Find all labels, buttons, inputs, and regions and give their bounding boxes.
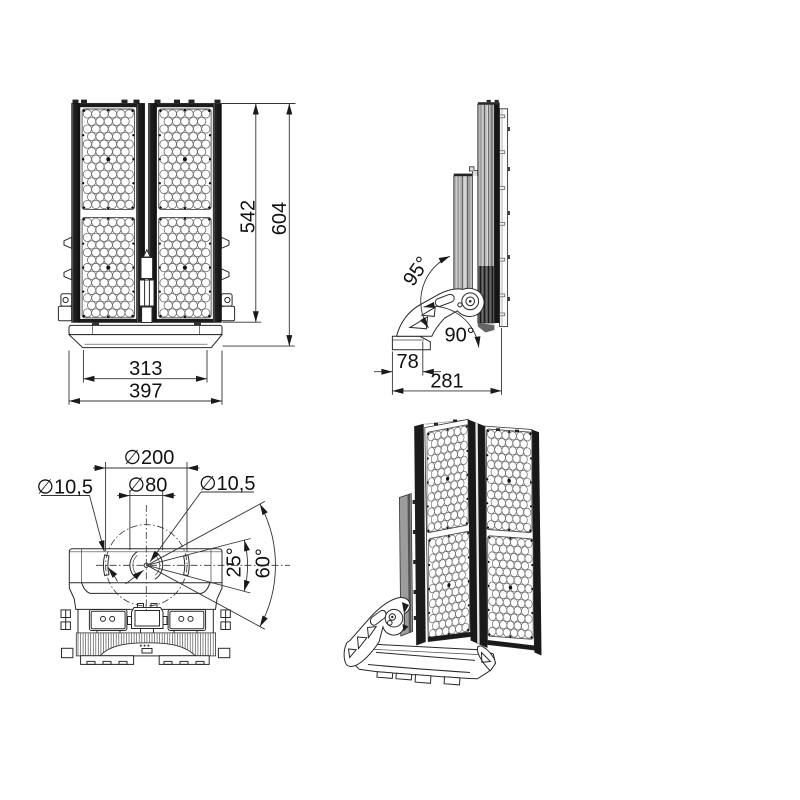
svg-text:60°: 60° [253, 548, 275, 578]
svg-text:∅200: ∅200 [124, 447, 175, 469]
svg-text:∅80: ∅80 [128, 475, 168, 497]
svg-text:∅10,5: ∅10,5 [199, 473, 255, 495]
svg-text:281: 281 [430, 371, 463, 393]
svg-text:542: 542 [238, 200, 260, 233]
svg-text:397: 397 [129, 380, 162, 402]
svg-text:604: 604 [269, 202, 291, 235]
svg-text:78: 78 [396, 351, 418, 373]
svg-text:90°: 90° [444, 324, 474, 346]
svg-text:313: 313 [129, 358, 162, 380]
svg-text:25°: 25° [224, 547, 246, 577]
svg-text:95°: 95° [399, 253, 434, 290]
svg-text:∅10,5: ∅10,5 [37, 477, 93, 499]
